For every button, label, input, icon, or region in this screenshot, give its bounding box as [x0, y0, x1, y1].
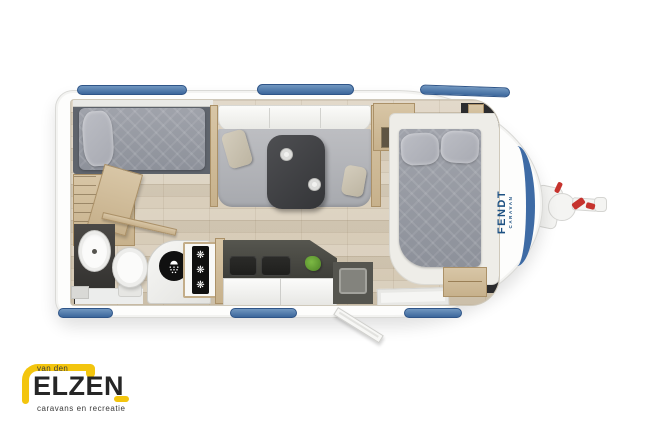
plant — [305, 256, 321, 271]
page: FENDT CARAVAN — [0, 0, 648, 432]
dinette-table — [267, 135, 325, 209]
window-bottom-rear — [58, 308, 113, 318]
logo-name: ELZEN — [33, 371, 124, 402]
dinette-backrest — [218, 105, 371, 131]
window-bottom-middle — [230, 308, 297, 318]
washbasin-drain — [92, 249, 97, 254]
hitch-coupling-head — [594, 197, 607, 212]
fridge-freezer-panel: ❋ ❋ ❋ — [192, 246, 209, 294]
hob-burner — [229, 256, 257, 276]
threshold-step — [71, 286, 89, 299]
brand-name: FENDT — [496, 177, 508, 247]
window-bottom-front — [404, 308, 462, 318]
pull-out-step — [377, 287, 449, 306]
cabinet-seam — [280, 278, 281, 306]
cup-icon — [280, 148, 293, 161]
floorplan-interior: ❋ ❋ ❋ — [70, 99, 500, 306]
window-top-middle — [257, 84, 354, 95]
cup-icon — [308, 178, 321, 191]
brand-lettering: FENDT CARAVAN — [496, 177, 520, 247]
logo-underscore — [114, 396, 129, 402]
shower-head-glyph — [165, 257, 183, 275]
snowflake-icon: ❋ — [192, 248, 209, 263]
bedside-cabinet — [443, 267, 487, 297]
snowflake-icon: ❋ — [192, 278, 209, 293]
toilet — [112, 247, 148, 288]
dinette-side-panel-left — [210, 105, 218, 207]
brand-subname: CARAVAN — [508, 177, 514, 247]
kitchen-sink — [339, 268, 367, 294]
logo-tagline: caravans en recreatie — [37, 404, 125, 413]
window-top-rear — [77, 85, 187, 95]
double-bed-pillow — [400, 132, 440, 166]
single-bed-headboard — [73, 100, 213, 107]
single-bed-pillow — [81, 110, 115, 167]
snowflake-icon: ❋ — [192, 263, 209, 278]
double-bed-pillow — [440, 130, 480, 164]
hob-burner — [261, 256, 291, 276]
logo-bracket-foot — [22, 397, 29, 404]
